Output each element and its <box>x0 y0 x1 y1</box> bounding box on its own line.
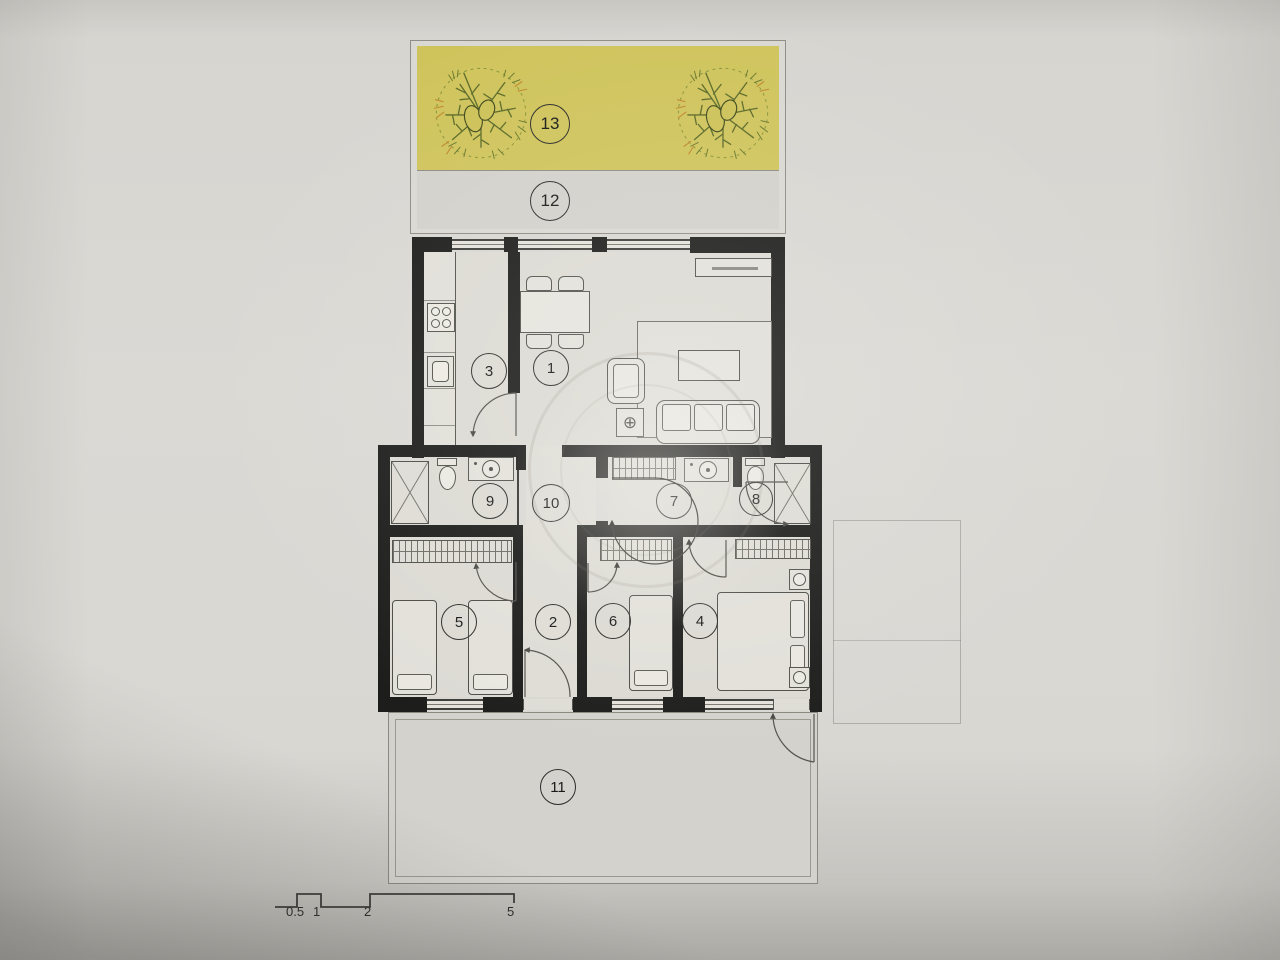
door-arc-terrace <box>773 714 814 762</box>
door-arc-kitchen <box>473 393 516 436</box>
floor-plan-photo: ⊕ <box>0 0 1280 960</box>
door-arc-bedroom5 <box>476 564 516 601</box>
door-arc-bedroom4 <box>689 540 726 577</box>
door-arcs-layer <box>0 0 1280 960</box>
door-arc-bath8 <box>746 482 788 524</box>
door-arc-bedroom6 <box>588 563 617 592</box>
scale-bar <box>270 885 522 915</box>
door-arc-hall2 <box>525 650 570 697</box>
door-arc-bath7 <box>612 478 698 564</box>
